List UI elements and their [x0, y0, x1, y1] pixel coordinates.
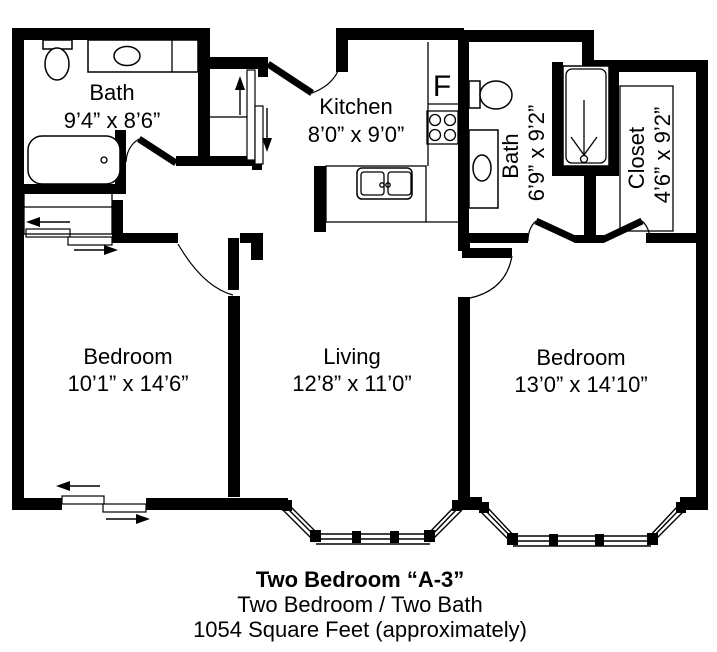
bedroom-2-door: [462, 248, 512, 298]
shower-icon: [563, 66, 609, 166]
vanity-icon: [88, 40, 198, 72]
bath-1-door: [126, 139, 176, 163]
bath-1-dims: 9’4” x 8’6”: [64, 108, 161, 133]
entry-door: [268, 64, 338, 93]
closet-label: Closet 4’6” x 9’2”: [624, 107, 675, 204]
linen-closet: [24, 193, 112, 234]
kitchen-dims: 8’0” x 9’0”: [308, 122, 405, 147]
slide-right-arrow-icon: [104, 245, 118, 255]
bedroom-2-name: Bedroom: [536, 345, 625, 370]
bedroom-1-sliding-window: [56, 481, 150, 524]
bedroom-1-dims: 10’1” x 14’6”: [67, 371, 188, 396]
living-dims: 12’8” x 11’0”: [292, 371, 411, 396]
floor-plan-drawing: Bath 9’4” x 8’6” Kitchen 8’0” x 9’0” Bat…: [0, 0, 717, 652]
plan-subtitle: Two Bedroom / Two Bath: [237, 592, 482, 617]
toilet-bowl-icon: [480, 81, 512, 109]
bedroom-1-closet-sliding-door: [26, 217, 118, 255]
kitchen-name: Kitchen: [319, 94, 392, 119]
bath-1-fixtures: [24, 40, 198, 234]
door-leaf: [462, 248, 512, 258]
utility-closet: [209, 70, 272, 164]
plan-title: Two Bedroom “A-3”: [256, 567, 465, 592]
living-name: Living: [323, 344, 380, 369]
sink-icon: [114, 47, 140, 66]
utility-appliance-icon: [209, 117, 248, 157]
bedroom-1-name: Bedroom: [83, 344, 172, 369]
bath-1-name: Bath: [89, 80, 134, 105]
door-leaf: [228, 238, 239, 290]
slide-up-arrow-icon: [235, 76, 245, 90]
slide-left-arrow-icon: [26, 217, 40, 227]
bedroom-1-door: [178, 238, 239, 295]
toilet-icon: [469, 81, 480, 108]
floor-plan-page: Bath 9’4” x 8’6” Kitchen 8’0” x 9’0” Bat…: [0, 0, 717, 652]
bedroom-2-dims: 13’0” x 14’10”: [514, 372, 647, 397]
slide-right-arrow-icon: [136, 514, 150, 524]
toilet-bowl-icon: [45, 48, 69, 80]
bath-2-label: Bath 6’9” x 9’2”: [498, 105, 549, 202]
bath-2-door: [528, 221, 577, 241]
bathtub-icon: [28, 136, 120, 184]
slide-left-arrow-icon: [56, 481, 70, 491]
living-bay-window: [283, 505, 462, 544]
plan-area: 1054 Square Feet (approximately): [193, 617, 527, 642]
refrigerator-label: F: [433, 70, 451, 103]
sink-icon: [473, 155, 491, 181]
